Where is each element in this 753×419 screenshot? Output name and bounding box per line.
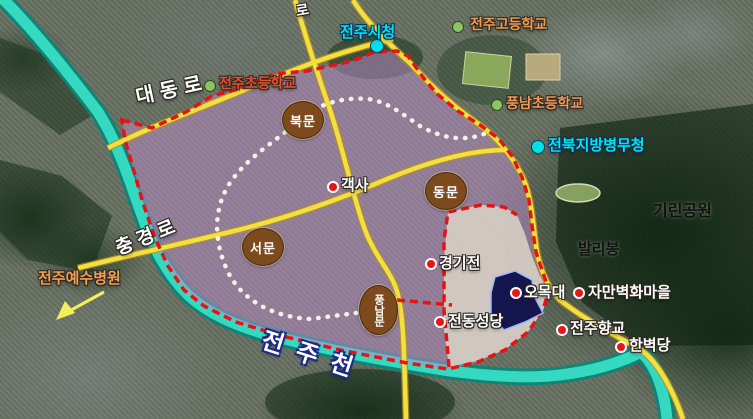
city-hall-marker: [371, 40, 383, 52]
road-fragment-label: 로: [295, 2, 310, 19]
hanbyeokdang-label: 한벽당: [629, 338, 670, 354]
gyeonggijeon-marker: [427, 260, 435, 268]
hospital-arrowhead: [56, 301, 75, 320]
gate-bukmun-label: 북문: [290, 111, 316, 130]
jaman-mural-label: 자만벽화마을: [588, 285, 671, 301]
school-field: [462, 52, 511, 89]
gate-seomun-label: 서문: [250, 238, 276, 257]
military-office-label: 전북지방병무청: [548, 138, 645, 154]
running-track: [556, 184, 600, 202]
gate-dongmun-label: 동문: [433, 182, 459, 201]
gate-seomun: 서문: [242, 228, 284, 266]
jaman-mural-marker: [575, 289, 583, 297]
hyanggyo-label: 전주향교: [570, 321, 625, 337]
jeonju-elementary-label: 전주초등학교: [219, 76, 296, 91]
gate-bukmun: 북문: [282, 101, 324, 139]
gate-pungnammun: 풍남문: [359, 285, 398, 335]
gate-pungnammun-label: 풍남문: [371, 294, 387, 327]
gate-dongmun: 동문: [425, 172, 467, 210]
gaeksa-label: 객사: [341, 178, 369, 194]
jeonju-high-marker: [453, 22, 463, 32]
military-office-marker: [532, 141, 544, 153]
gaeksa-marker: [329, 183, 337, 191]
pungnam-elementary-label: 풍남초등학교: [506, 96, 583, 111]
jeondong-cathedral-label: 전동성당: [448, 314, 503, 330]
pungnam-elementary-marker: [492, 100, 502, 110]
gyeonggijeon-label: 경기전: [439, 256, 480, 272]
satellite-map-canvas: 북문 동문 서문 풍남문 전주시청 전북지방병무청 전주초등학교 전주고등학교 …: [0, 0, 753, 419]
hyanggyo-marker: [558, 326, 566, 334]
hanbyeokdang-marker: [617, 343, 625, 351]
balibong-label: 발리봉: [578, 242, 619, 258]
jesus-hospital-label: 전주예수병원: [38, 271, 121, 287]
west-hill-woods: [0, 160, 112, 272]
girin-park-label: 기린공원: [653, 204, 712, 221]
jeonju-high-label: 전주고등학교: [470, 17, 547, 32]
school-field-2: [526, 54, 560, 80]
city-hall-label: 전주시청: [340, 25, 395, 41]
map-artwork: [0, 0, 753, 419]
omokdae-marker: [512, 289, 520, 297]
omokdae-label: 오목대: [524, 285, 565, 301]
jeondong-cathedral-marker: [436, 318, 444, 326]
